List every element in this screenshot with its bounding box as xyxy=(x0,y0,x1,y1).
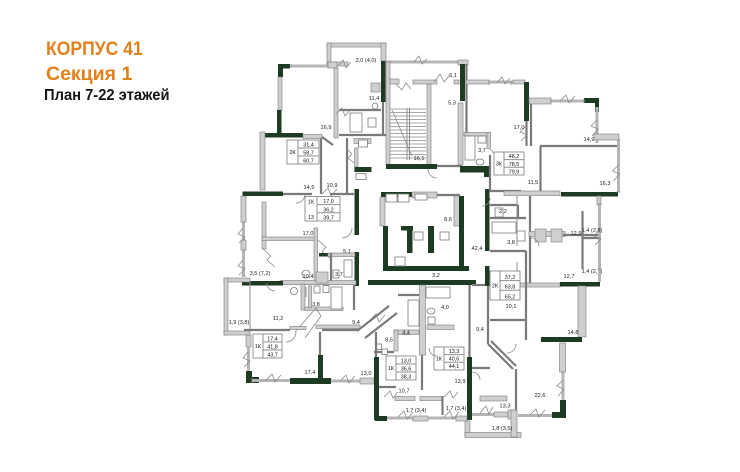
svg-text:11,4: 11,4 xyxy=(369,96,379,102)
svg-text:9,4: 9,4 xyxy=(476,327,484,333)
svg-text:79,9: 79,9 xyxy=(509,170,520,176)
svg-text:8,6: 8,6 xyxy=(444,217,452,223)
svg-text:1,7 (3,4): 1,7 (3,4) xyxy=(446,406,467,412)
svg-text:37,2: 37,2 xyxy=(505,275,516,281)
svg-text:2,0 (4,0): 2,0 (4,0) xyxy=(356,58,377,64)
svg-text:12,7: 12,7 xyxy=(564,274,575,280)
svg-text:13,0: 13,0 xyxy=(361,371,372,377)
svg-text:58,7: 58,7 xyxy=(303,151,314,157)
svg-text:38,3: 38,3 xyxy=(401,375,412,381)
svg-text:60,7: 60,7 xyxy=(303,159,314,165)
svg-text:63,8: 63,8 xyxy=(505,285,516,291)
svg-text:1,7 (3,4): 1,7 (3,4) xyxy=(406,408,427,414)
svg-text:22,6: 22,6 xyxy=(535,393,546,399)
svg-text:12,9: 12,9 xyxy=(571,231,582,237)
svg-text:2,2: 2,2 xyxy=(499,209,507,215)
svg-text:8,5: 8,5 xyxy=(385,338,393,344)
svg-text:11,2: 11,2 xyxy=(273,316,283,322)
svg-text:1К: 1К xyxy=(255,344,262,350)
svg-text:2К: 2К xyxy=(492,284,499,290)
svg-text:1К: 1К xyxy=(308,200,315,206)
svg-text:17,0: 17,0 xyxy=(303,231,314,237)
svg-text:13,9: 13,9 xyxy=(455,379,466,385)
svg-text:16,9: 16,9 xyxy=(321,125,332,131)
svg-text:1К: 1К xyxy=(436,357,443,363)
svg-text:11,5: 11,5 xyxy=(528,180,538,186)
svg-text:42,4: 42,4 xyxy=(472,246,483,252)
svg-text:13,3: 13,3 xyxy=(500,404,511,410)
svg-text:3,7: 3,7 xyxy=(478,148,486,154)
svg-text:13,3: 13,3 xyxy=(449,349,460,355)
svg-text:3,2: 3,2 xyxy=(432,273,440,279)
svg-text:17,0: 17,0 xyxy=(323,199,334,205)
svg-text:3,5 (7,2): 3,5 (7,2) xyxy=(250,271,271,277)
svg-text:14,5: 14,5 xyxy=(304,185,315,191)
svg-text:4,0: 4,0 xyxy=(441,305,449,311)
svg-text:1,9 (3,8): 1,9 (3,8) xyxy=(229,320,250,326)
svg-text:39,7: 39,7 xyxy=(323,216,334,222)
svg-text:10,7: 10,7 xyxy=(399,389,410,395)
svg-text:10,1: 10,1 xyxy=(506,304,517,310)
svg-text:6,1: 6,1 xyxy=(449,73,457,79)
svg-text:2К: 2К xyxy=(289,150,296,156)
svg-text:44,1: 44,1 xyxy=(449,364,460,370)
svg-text:1,4 (2,8): 1,4 (2,8) xyxy=(582,228,603,234)
svg-text:13: 13 xyxy=(308,215,314,221)
svg-text:36,2: 36,2 xyxy=(323,207,334,213)
svg-text:1К: 1К xyxy=(388,366,395,372)
svg-text:14,8: 14,8 xyxy=(568,330,579,336)
svg-text:43,7: 43,7 xyxy=(267,353,278,359)
svg-text:16,3: 16,3 xyxy=(600,181,611,187)
svg-text:14,9: 14,9 xyxy=(584,137,595,143)
svg-text:1,8 (3,5): 1,8 (3,5) xyxy=(492,426,513,432)
svg-text:40,6: 40,6 xyxy=(449,357,460,363)
svg-text:36,6: 36,6 xyxy=(401,367,412,373)
svg-text:3,8: 3,8 xyxy=(312,302,320,308)
svg-text:31,4: 31,4 xyxy=(303,143,314,149)
svg-text:17,4: 17,4 xyxy=(305,370,316,376)
svg-text:16,1: 16,1 xyxy=(414,156,425,162)
svg-text:9,4: 9,4 xyxy=(352,320,360,326)
svg-text:5,3: 5,3 xyxy=(448,101,456,107)
svg-text:17,0: 17,0 xyxy=(514,125,525,131)
svg-text:13,0: 13,0 xyxy=(401,359,412,365)
svg-text:41,8: 41,8 xyxy=(267,345,278,351)
svg-text:4,4: 4,4 xyxy=(402,331,410,337)
svg-text:17,4: 17,4 xyxy=(267,337,278,343)
svg-text:65,2: 65,2 xyxy=(505,294,516,300)
svg-text:78,5: 78,5 xyxy=(509,162,520,168)
svg-text:3,8: 3,8 xyxy=(507,240,515,246)
svg-text:3,7: 3,7 xyxy=(335,272,343,278)
svg-text:48,2: 48,2 xyxy=(509,154,520,160)
svg-text:3К: 3К xyxy=(496,162,503,168)
svg-text:10,4: 10,4 xyxy=(303,274,314,280)
